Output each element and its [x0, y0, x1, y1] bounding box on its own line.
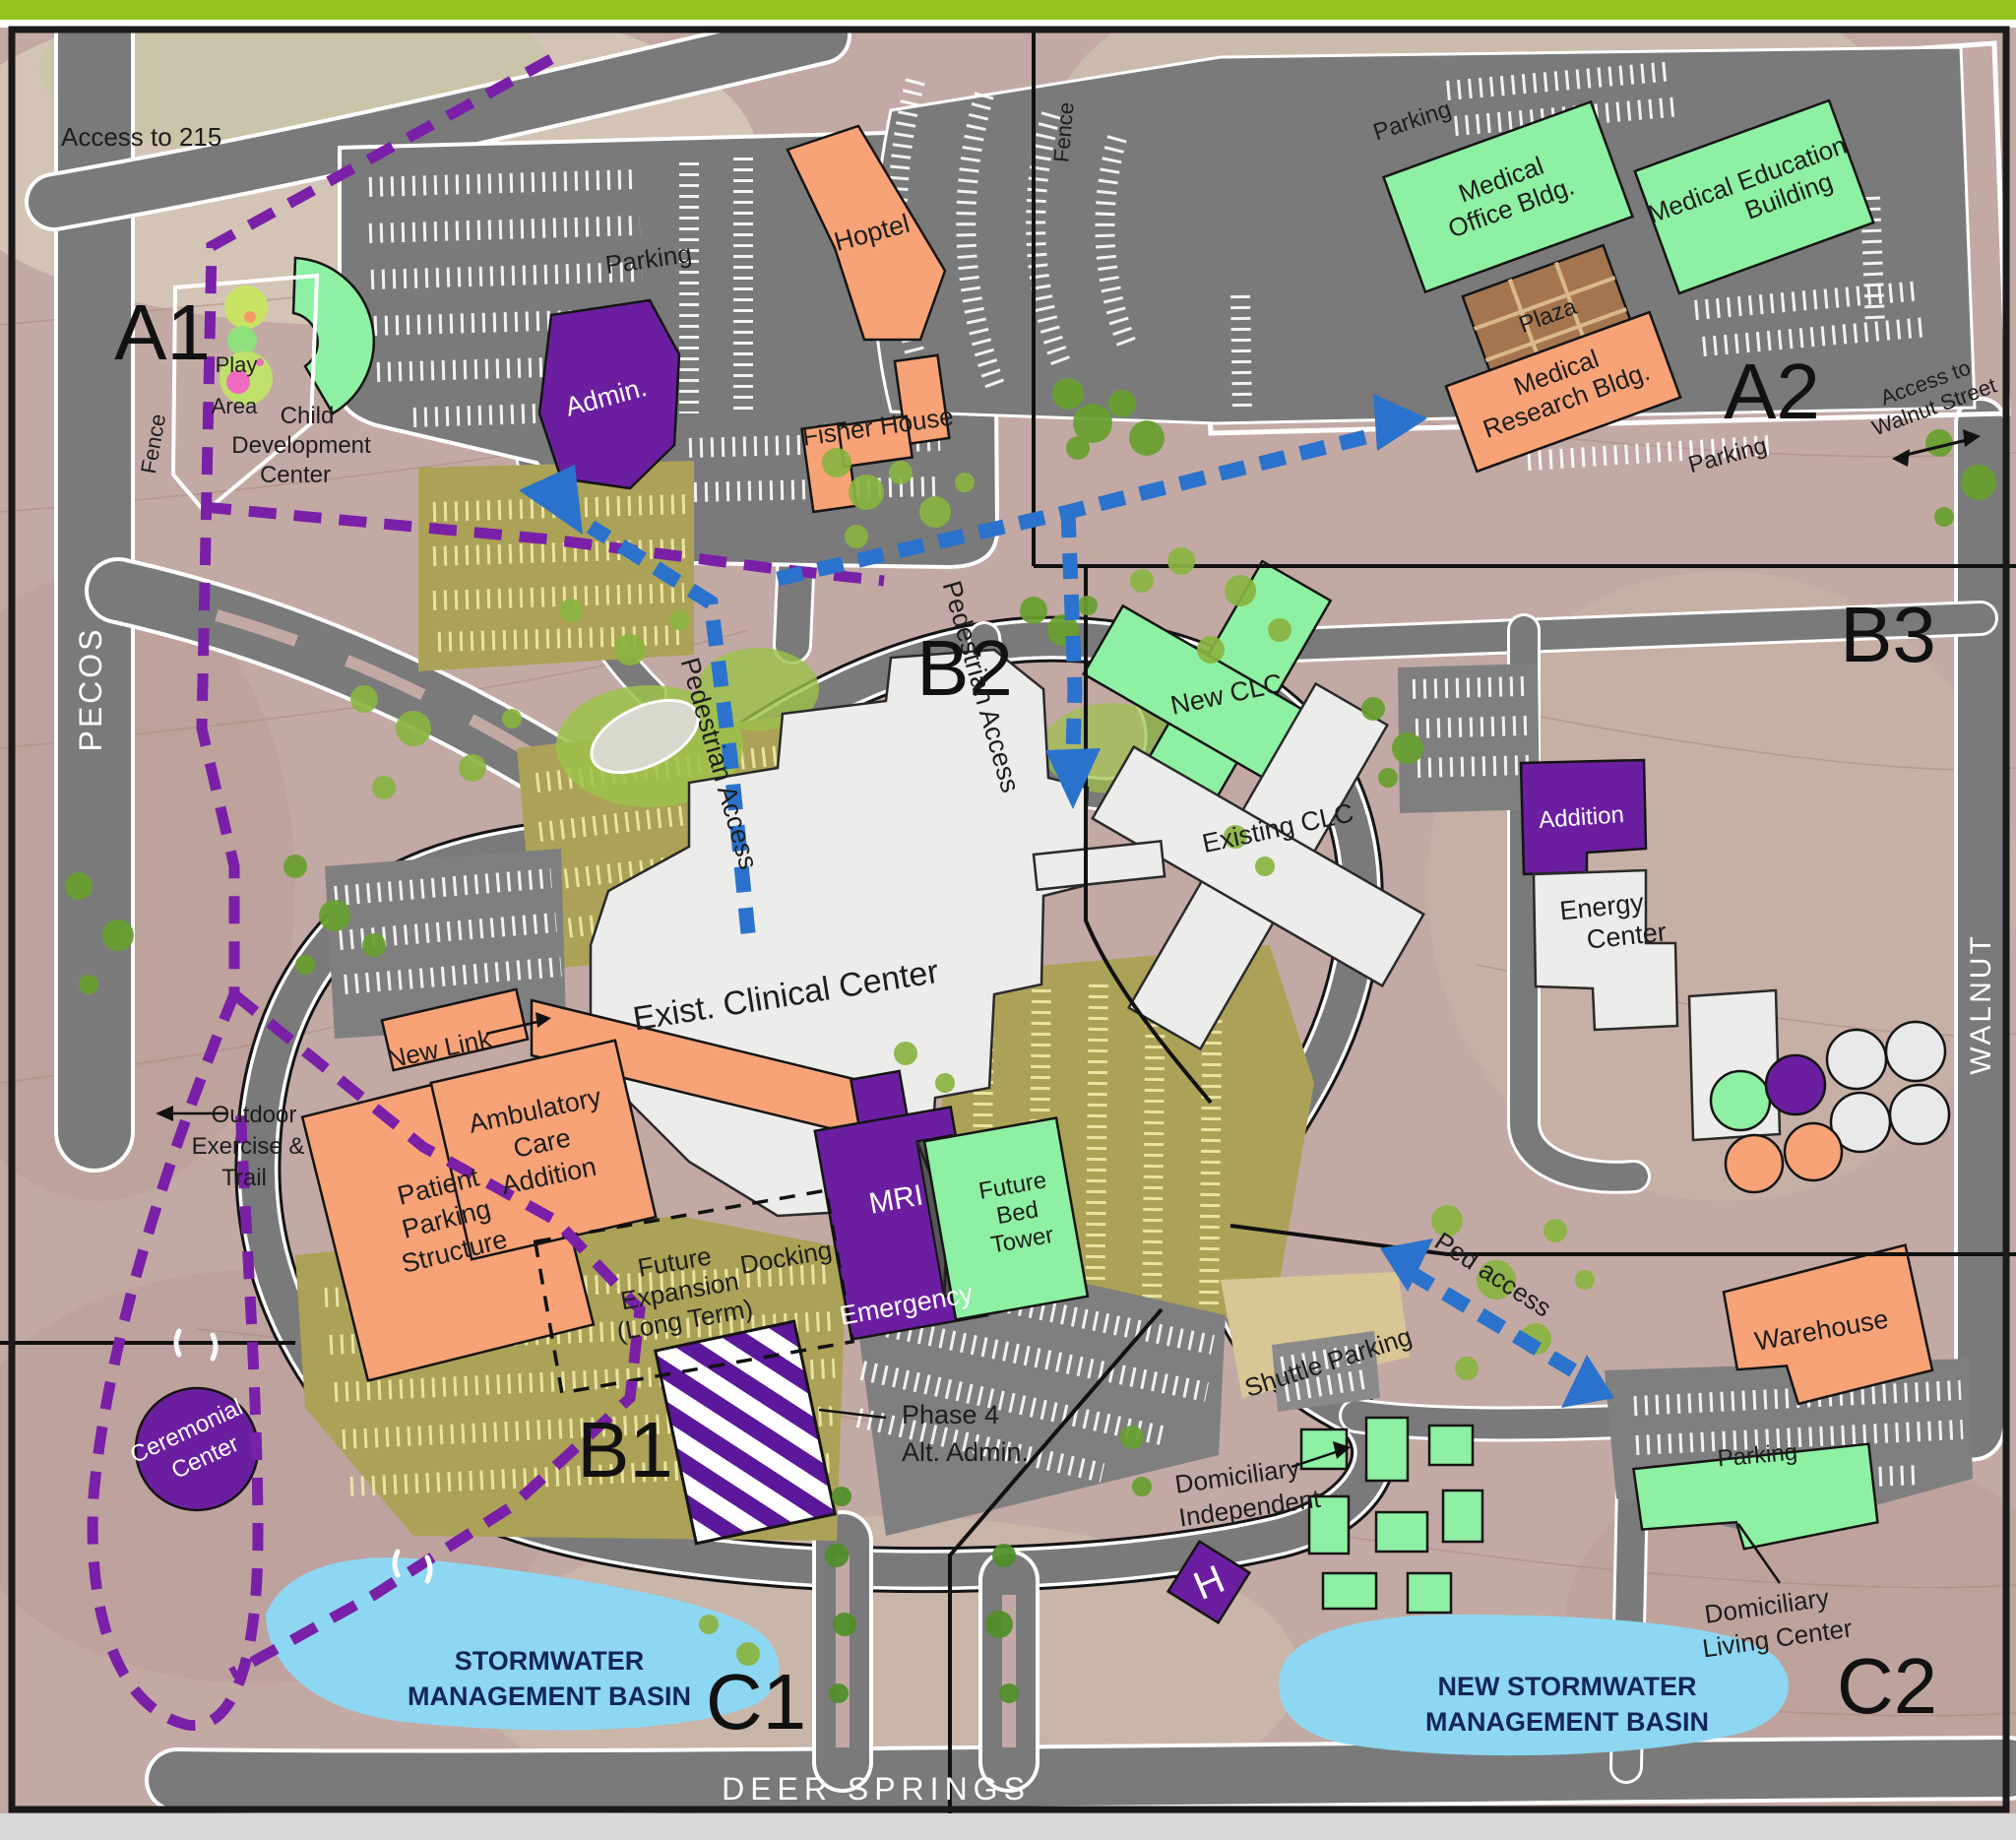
section-label-b1: B1 [577, 1406, 673, 1493]
campus-master-plan-map: H A1 A2 B1 B2 B3 C1 C2 [0, 0, 2016, 1840]
street-walnut: WALNUT [1965, 933, 1997, 1075]
road-deer-springs [177, 1768, 2008, 1781]
label-fence-a2: Fence [1048, 101, 1078, 163]
section-label-a2: A2 [1724, 348, 1820, 435]
street-pecos: PECOS [73, 626, 108, 751]
label-access-215: Access to 215 [61, 122, 221, 152]
street-deer-springs: DEER SPRINGS [722, 1771, 1031, 1807]
map-canvas: H A1 A2 B1 B2 B3 C1 C2 [0, 0, 2016, 1840]
section-label-a1: A1 [114, 288, 211, 376]
section-label-c2: C2 [1837, 1642, 1937, 1730]
frame-green-band [0, 0, 2016, 20]
section-label-c1: C1 [706, 1658, 806, 1745]
section-label-b3: B3 [1840, 591, 1936, 678]
frame-bottom-strip [0, 1813, 2016, 1840]
